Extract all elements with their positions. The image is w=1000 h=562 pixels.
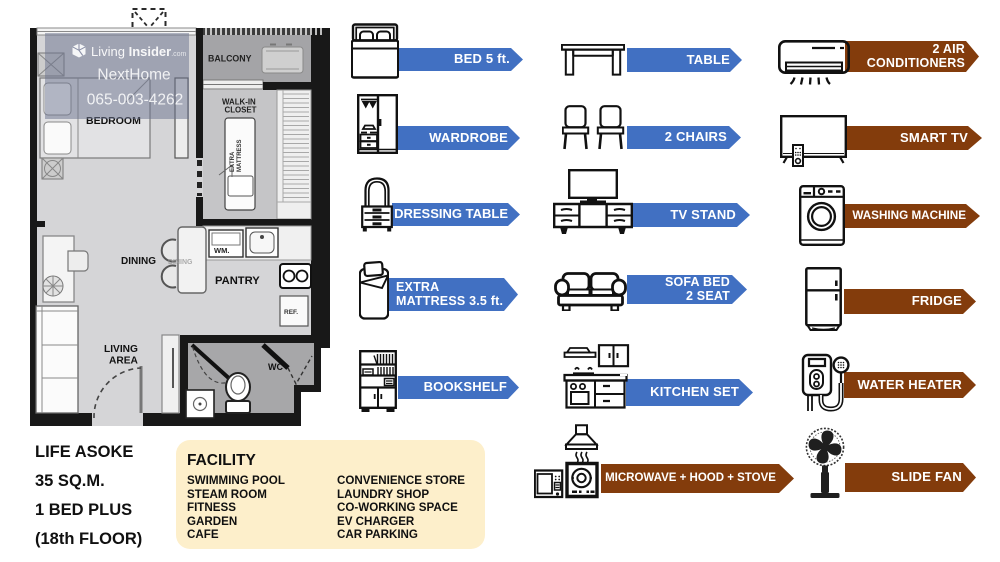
svg-text:CLOSET: CLOSET (225, 106, 257, 115)
svg-text:065-003-4262: 065-003-4262 (87, 92, 184, 109)
svg-text:WC: WC (268, 362, 283, 372)
svg-text:AREA: AREA (109, 356, 139, 367)
svg-text:PANTRY: PANTRY (215, 275, 260, 287)
svg-text:DINING: DINING (121, 256, 156, 267)
svg-text:WM.: WM. (214, 246, 229, 255)
svg-text:NextHome: NextHome (97, 67, 170, 84)
svg-text:MATTRESS: MATTRESS (237, 139, 243, 172)
svg-text:DINING: DINING (168, 259, 193, 266)
svg-text:BALCONY: BALCONY (208, 54, 252, 64)
svg-text:EXTRA: EXTRA (230, 151, 236, 172)
svg-text:REF.: REF. (284, 309, 298, 316)
svg-text:LIVING: LIVING (104, 344, 138, 355)
